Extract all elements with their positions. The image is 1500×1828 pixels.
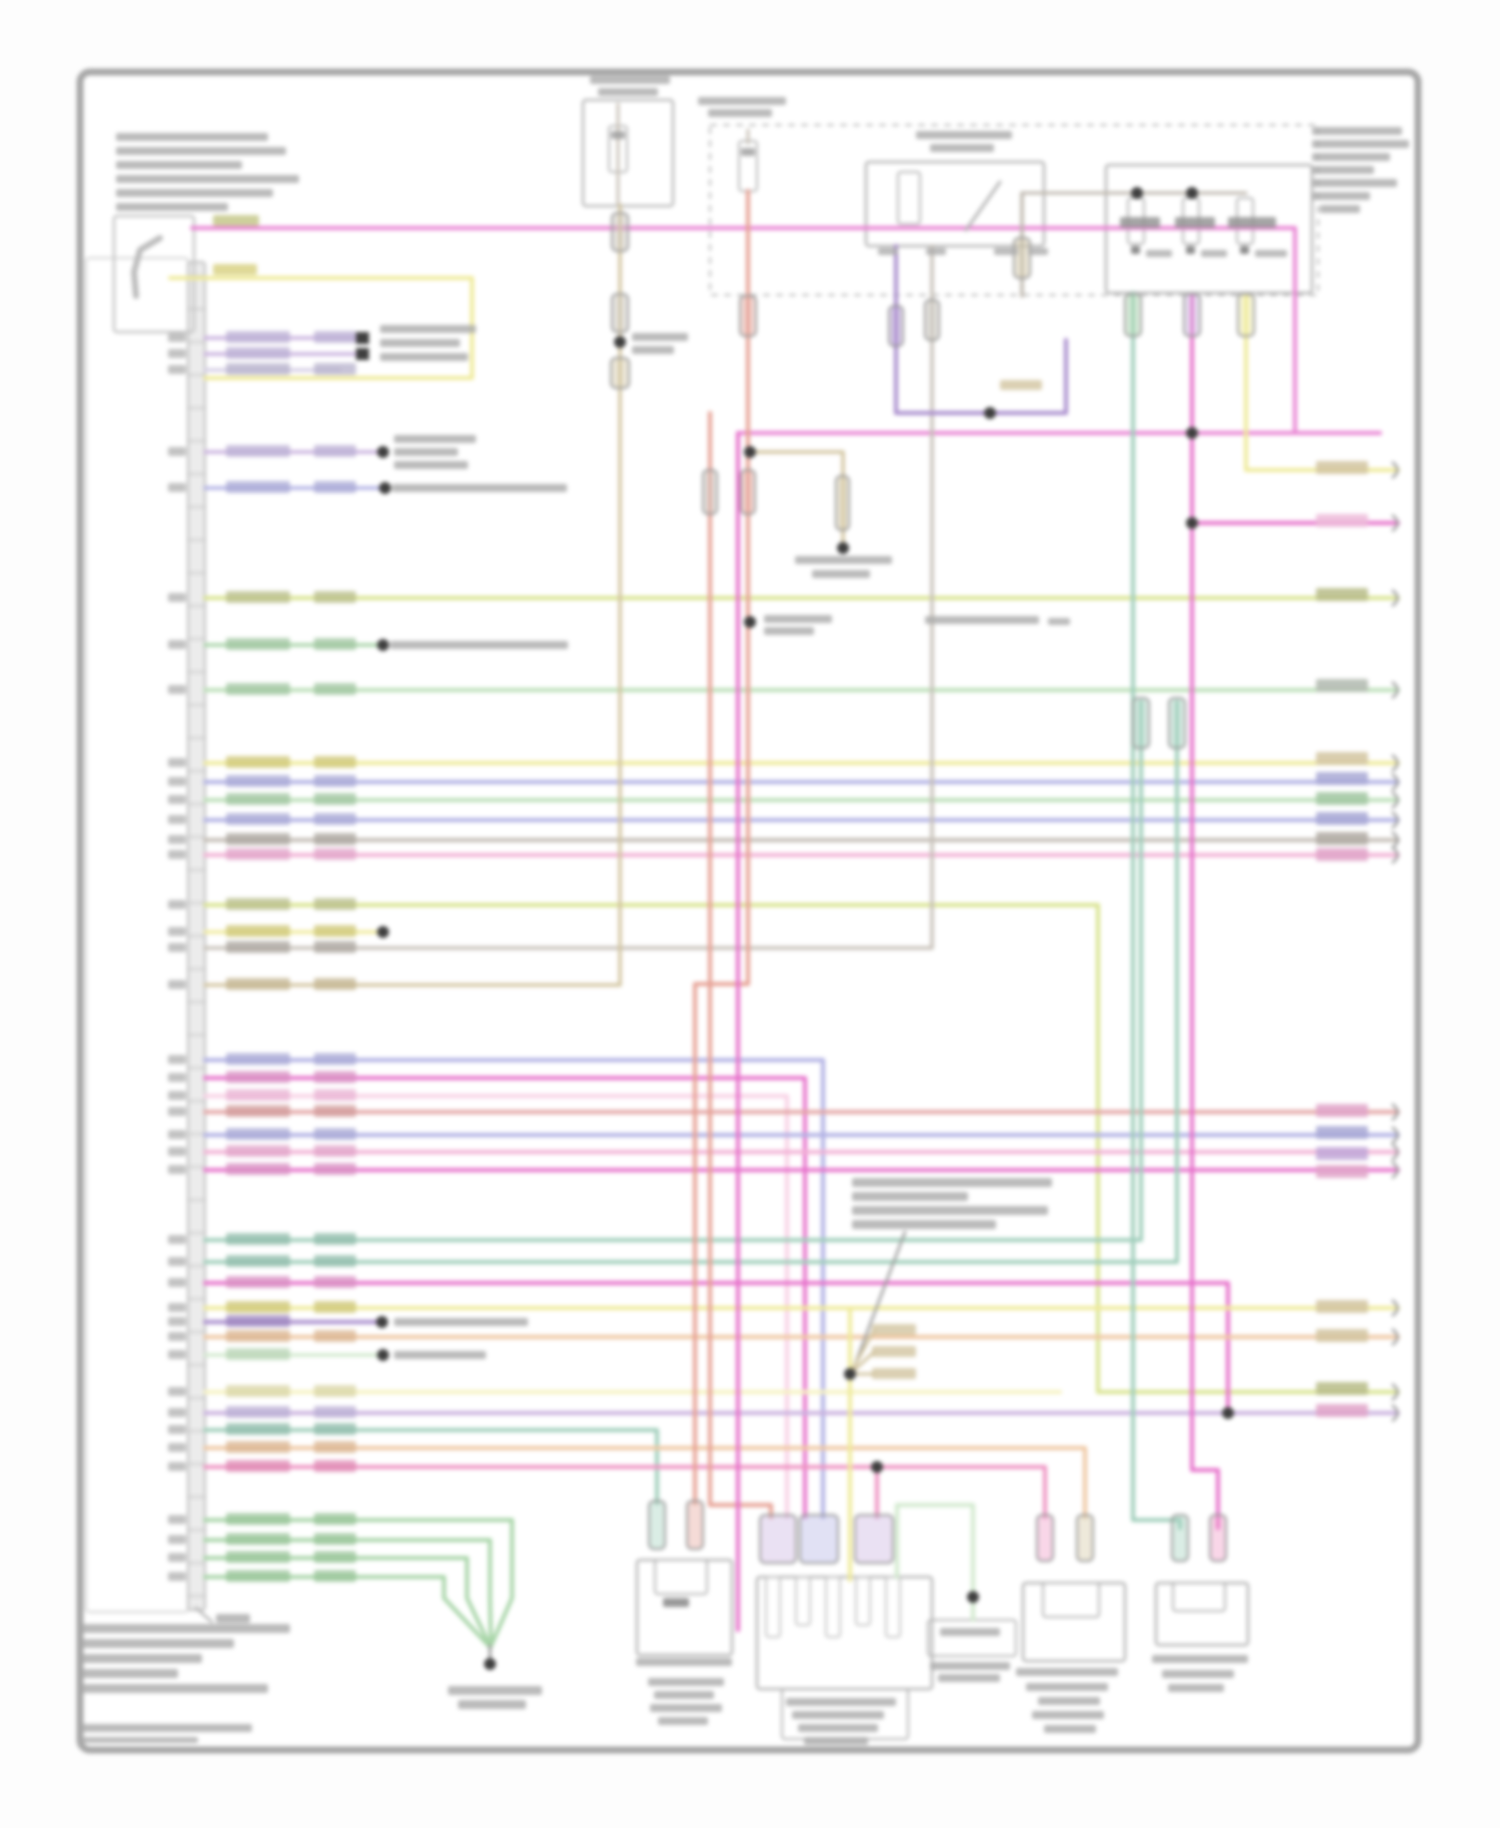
relay-pin-label [926,248,946,255]
pcm-pin-label [168,850,186,859]
fuse-glyph-mark [741,148,755,156]
sensor-1-label [654,1691,714,1699]
sensor-pin-block [800,1515,838,1563]
wire-color-chip [226,941,290,953]
wire-gauge-chip [314,978,356,990]
sensor-pin [649,1501,665,1549]
splice-tag [872,1368,916,1379]
pcm-pin-label [168,333,186,342]
wire-gauge-chip [314,1551,356,1563]
wire-color-chip [226,1276,290,1288]
offpage-wire-chip [1316,679,1368,692]
fuse-block-desc [1312,153,1390,161]
pcm-label [82,1639,234,1648]
top-left-label [116,133,268,141]
wire-color-chip [226,1163,290,1175]
sensor-4-label [1026,1683,1108,1691]
splice [837,542,849,554]
pcm-pin-label [168,1147,186,1156]
wire-tag [213,264,257,275]
wire-gauge-chip [314,481,356,493]
pcm-pin-label [168,815,186,824]
pcm-pin-label [168,640,186,649]
wire-gauge-chip [314,941,356,953]
fuse-pin [1186,246,1195,254]
offpage-wire-chip [1316,1165,1368,1178]
pcm-pin-label [168,1553,186,1562]
fuse-block-desc [1312,140,1409,148]
fuse-pin-label [1146,250,1172,257]
inline-connector [1133,698,1149,748]
wire-color-chip [226,1441,290,1453]
purple-row-note [394,1318,528,1326]
pcm-label [82,1684,268,1693]
wire-color-chip [226,363,290,375]
wire-color-chip [226,638,290,650]
splice620-note [632,346,674,354]
fuse-b-label [698,97,786,105]
sensor-5-label [1162,1670,1234,1678]
inline-connector [1238,294,1254,336]
fuse-pin-label [1255,250,1287,257]
callout-text [852,1220,996,1229]
offpage-wire-chip [1316,1404,1368,1417]
row645-note [390,641,568,649]
pcm-pin-label [168,483,186,492]
pcm-pin-label [168,927,186,936]
fuse-glyph-mark [611,131,625,139]
sensor-pin [687,1501,703,1549]
fuse-pin-label [1201,250,1227,257]
fuse-b-label [708,109,772,117]
resistor-note [795,556,892,564]
diagram-blur-layer [0,0,1500,1828]
fuse-block-desc [1312,192,1370,200]
fuse-a-label [598,88,658,96]
wire-color-chip [226,1406,290,1418]
ground-label [458,1700,526,1709]
pcm-pin-label [168,1055,186,1064]
splice750-note [764,615,832,623]
wire-gauge-chip [314,1105,356,1117]
wire-color-chip [226,1315,290,1327]
splice [614,336,626,348]
sensor-pin [1077,1515,1093,1561]
pcm-pin-label [168,685,186,694]
splice-tag [872,1346,916,1357]
wire-gauge-chip [314,1533,356,1545]
row452-note [394,435,476,443]
wiring-diagram-canvas [0,0,1500,1828]
wire-gauge-chip [314,1255,356,1267]
inline-connector [611,358,629,388]
splice [377,1349,389,1361]
offpage-wire-chip [1316,461,1368,474]
gray-wire-note [1048,618,1070,625]
wire-color-chip [226,347,290,359]
offpage-wire-chip [1316,1382,1368,1395]
wire-color-chip [226,1330,290,1342]
pcm-pin-label [168,1535,186,1544]
pcm-pin-label [168,835,186,844]
splice [1186,427,1198,439]
inline-connector [612,213,628,251]
wire-gauge-chip [314,683,356,695]
splice [744,616,756,628]
wire-color-chip [226,1089,290,1101]
wire-color-chip [226,1053,290,1065]
pcm-label [82,1669,178,1678]
splice [376,1316,388,1328]
offpage-wire-chip [1316,848,1368,861]
inline-connector [612,294,628,332]
pcm-pin-label [168,943,186,952]
wire-color-chip [226,1071,290,1083]
fuse-a-label [590,76,670,84]
wire-tag [1000,380,1042,390]
wire-color-chip [226,1570,290,1582]
sensor-1-label [636,1658,732,1666]
pcm-pin-label [168,1073,186,1082]
offpage-wire-chip [1316,1126,1368,1139]
wire-color-chip [226,1460,290,1472]
pcm-pin-label [168,365,186,374]
inline-connector [1169,698,1185,748]
splice [1222,1407,1234,1419]
wire-gauge-chip [314,591,356,603]
relay-label [930,144,994,152]
wire-color-chip [226,1233,290,1245]
wire-color-chip [226,683,290,695]
wire-gauge-chip [314,1460,356,1472]
top-left-label [116,189,273,197]
wire-gauge-chip [314,1441,356,1453]
splice-tag [872,1324,916,1335]
wire-color-chip [226,1301,290,1313]
wire-color-chip [226,813,290,825]
fuse-pin [1240,246,1249,254]
sensor-pin [1172,1515,1188,1561]
pcm-pin-label [168,1408,186,1417]
wire-gauge-chip [314,363,356,375]
offpage-wire-chip [1316,1300,1368,1313]
pcm-pin-label [168,1303,186,1312]
sensor-2-label [792,1711,884,1719]
splice-square [356,332,369,344]
diode-label [940,1628,1000,1636]
diode-label [938,1674,1000,1682]
pcm-pin-label [168,1462,186,1471]
fuse-chip [1120,217,1160,228]
wire-color-chip [226,331,290,343]
sensor-pin-block [760,1515,796,1563]
wire-gauge-chip [314,1570,356,1582]
splice [844,1368,856,1380]
sensor-4-label [1044,1725,1096,1733]
inline-connector [740,296,756,336]
relay-pin-label [1028,248,1048,255]
pcm-pin-label [168,349,186,358]
offpage-wire-chip [1316,514,1368,527]
wire-gauge-chip [314,793,356,805]
pcm-pin-label [168,1257,186,1266]
sensor-pin [1210,1515,1226,1561]
pcm-pin-label [168,758,186,767]
wire-color-chip [226,925,290,937]
wire-gauge-chip [314,1071,356,1083]
wire-gauge-chip [314,331,356,343]
wire-gauge-chip [314,1053,356,1065]
pcm-pin-label [168,777,186,786]
relay-pin-label [994,248,1018,255]
wire-gauge-chip [314,445,356,457]
pcm-label [82,1624,290,1633]
splice [967,1591,979,1603]
offpage-wire-chip [1316,1329,1368,1342]
wire-gauge-chip [314,1301,356,1313]
wire-gauge-chip [314,638,356,650]
ground-point [484,1658,496,1670]
wire-color-chip [226,978,290,990]
wire-tag [213,215,259,226]
fuse-block-desc [1312,166,1374,174]
callout-text [852,1192,968,1201]
pcm-pin-label [168,900,186,909]
inline-connector [1184,294,1200,336]
resistor-stub [836,476,849,530]
sensor-5-notch [1173,1583,1225,1611]
fuse-pin [1131,246,1140,254]
pcm-pin-label [168,1091,186,1100]
wire-gauge-chip [314,1233,356,1245]
row452-note [394,461,468,469]
wire-color-chip [226,848,290,860]
resistor-note [812,570,870,578]
fuse-block-desc [1312,127,1402,135]
wire-color-chip [226,1423,290,1435]
splice [377,926,389,938]
wire-color-chip [226,1385,290,1397]
fuse-block-desc [1312,179,1397,187]
wire-color-chip [226,898,290,910]
fuse-block-desc [1320,205,1360,213]
sensor-pin [1037,1515,1053,1561]
wire-gauge-chip [314,1089,356,1101]
pcm-pin-label [168,1425,186,1434]
wire-color-chip [226,756,290,768]
top-left-label [116,203,228,211]
wire-gauge-chip [314,898,356,910]
wire-color-chip [226,1128,290,1140]
callout-text [852,1206,1048,1215]
pcm-pin-label [168,1130,186,1139]
wire-color-chip [226,481,290,493]
sensor-4-label [1016,1668,1118,1676]
row488-note [392,484,567,492]
pcm-pin-label [168,1515,186,1524]
splice [377,639,389,651]
top-left-label [116,147,286,155]
wire-color-chip [226,833,290,845]
inline-connector [925,300,939,340]
inline-connector [1125,294,1141,336]
wire-gauge-chip [314,1406,356,1418]
wire-color-chip [226,793,290,805]
splice [1131,187,1143,199]
pcm-pin-label [168,1350,186,1359]
inline-connector [1014,238,1030,278]
gray-wire-note [925,616,1039,624]
sensor-2-label [804,1737,868,1745]
pcm-pin-label [168,1317,186,1326]
splice [871,1461,883,1473]
palegreen-row-note [394,1351,486,1359]
footer [80,1724,252,1732]
splice [1186,187,1198,199]
splice620-note [632,333,688,341]
wire-color-chip [226,1551,290,1563]
sensor-1-notch [655,1560,707,1594]
wire-gauge-chip [314,756,356,768]
offpage-wire-chip [1316,832,1368,845]
sensor-2-label [798,1724,878,1732]
sensor-4-notch [1043,1583,1099,1617]
sensor-1-label [650,1704,722,1712]
pcm-pin-label [168,593,186,602]
sensor-1-mark [663,1598,689,1607]
top-left-label [116,175,299,183]
wire-gauge-chip [314,1513,356,1525]
wire-color-chip [226,1255,290,1267]
pcm-pin-label [168,980,186,989]
offpage-wire-chip [1316,588,1368,601]
wire-gauge-chip [314,775,356,787]
wire-gauge-chip [314,1276,356,1288]
sensor-pin-block [855,1515,893,1563]
splice [984,407,996,419]
inline-connector [703,470,717,514]
wire-gauge-chip [314,1145,356,1157]
inline-connector [889,306,903,346]
wire-color-chip [226,445,290,457]
sensor-5-label [1168,1684,1224,1692]
wire-color-chip [226,1513,290,1525]
loop-note [380,353,468,361]
wire-color-chip [226,1105,290,1117]
wire-gauge-chip [314,925,356,937]
wire-gauge-chip [314,1330,356,1342]
splice [1186,517,1198,529]
offpage-wire-chip [1316,1104,1368,1117]
wire-color-chip [226,1533,290,1545]
splice [744,446,756,458]
fuse-chip [1228,217,1276,228]
relay-label [916,131,1012,139]
wire-gauge-chip [314,1423,356,1435]
splice [379,482,391,494]
footer [80,1737,198,1743]
wire-color-chip [226,1145,290,1157]
wire-color-chip [226,1348,290,1360]
splice750-note [764,627,814,635]
fuse-chip [1175,217,1215,228]
offpage-wire-chip [1316,792,1368,805]
pcm-pin-label [168,447,186,456]
pcm-pin-label [168,1387,186,1396]
wire-gauge-chip [314,1128,356,1140]
pcm-label [82,1654,202,1663]
sensor-1-label [648,1678,724,1686]
inline-connector [741,470,755,514]
sensor-4-label [1038,1697,1100,1705]
sensor-5-label [1152,1655,1248,1663]
splice [377,446,389,458]
pcm-pin-label [168,1107,186,1116]
row452-note [394,448,458,456]
sensor-2-label [786,1698,896,1706]
wire-color-chip [226,591,290,603]
diode-label [930,1662,1010,1670]
offpage-wire-chip [1316,772,1368,785]
scanned-wiring-diagram-page [0,0,1500,1828]
pcm-pin-label [168,1332,186,1341]
wire-gauge-chip [314,813,356,825]
loop-note [380,325,476,333]
loop-note [380,339,460,347]
pcm-pin-label [168,795,186,804]
pcm-pin-label [168,1443,186,1452]
wire-gauge-chip [314,1385,356,1397]
ground-label [448,1686,542,1695]
pcm-pin-label [168,1572,186,1581]
pcm-pin-label [168,1278,186,1287]
pcm-tail-tag [216,1614,250,1623]
sensor-1-label [658,1717,708,1725]
wire-gauge-chip [314,1163,356,1175]
offpage-wire-chip [1316,752,1368,765]
offpage-wire-chip [1316,1147,1368,1160]
wire-gauge-chip [314,833,356,845]
pcm-pin-label [168,1165,186,1174]
wire-gauge-chip [314,848,356,860]
offpage-wire-chip [1316,812,1368,825]
relay-pin-label [878,248,898,255]
sensor-4-label [1032,1711,1104,1719]
pcm-pin-label [168,1235,186,1244]
top-left-label [116,161,242,169]
splice-square [356,348,369,360]
callout-text [852,1178,1052,1187]
wire-color-chip [226,775,290,787]
